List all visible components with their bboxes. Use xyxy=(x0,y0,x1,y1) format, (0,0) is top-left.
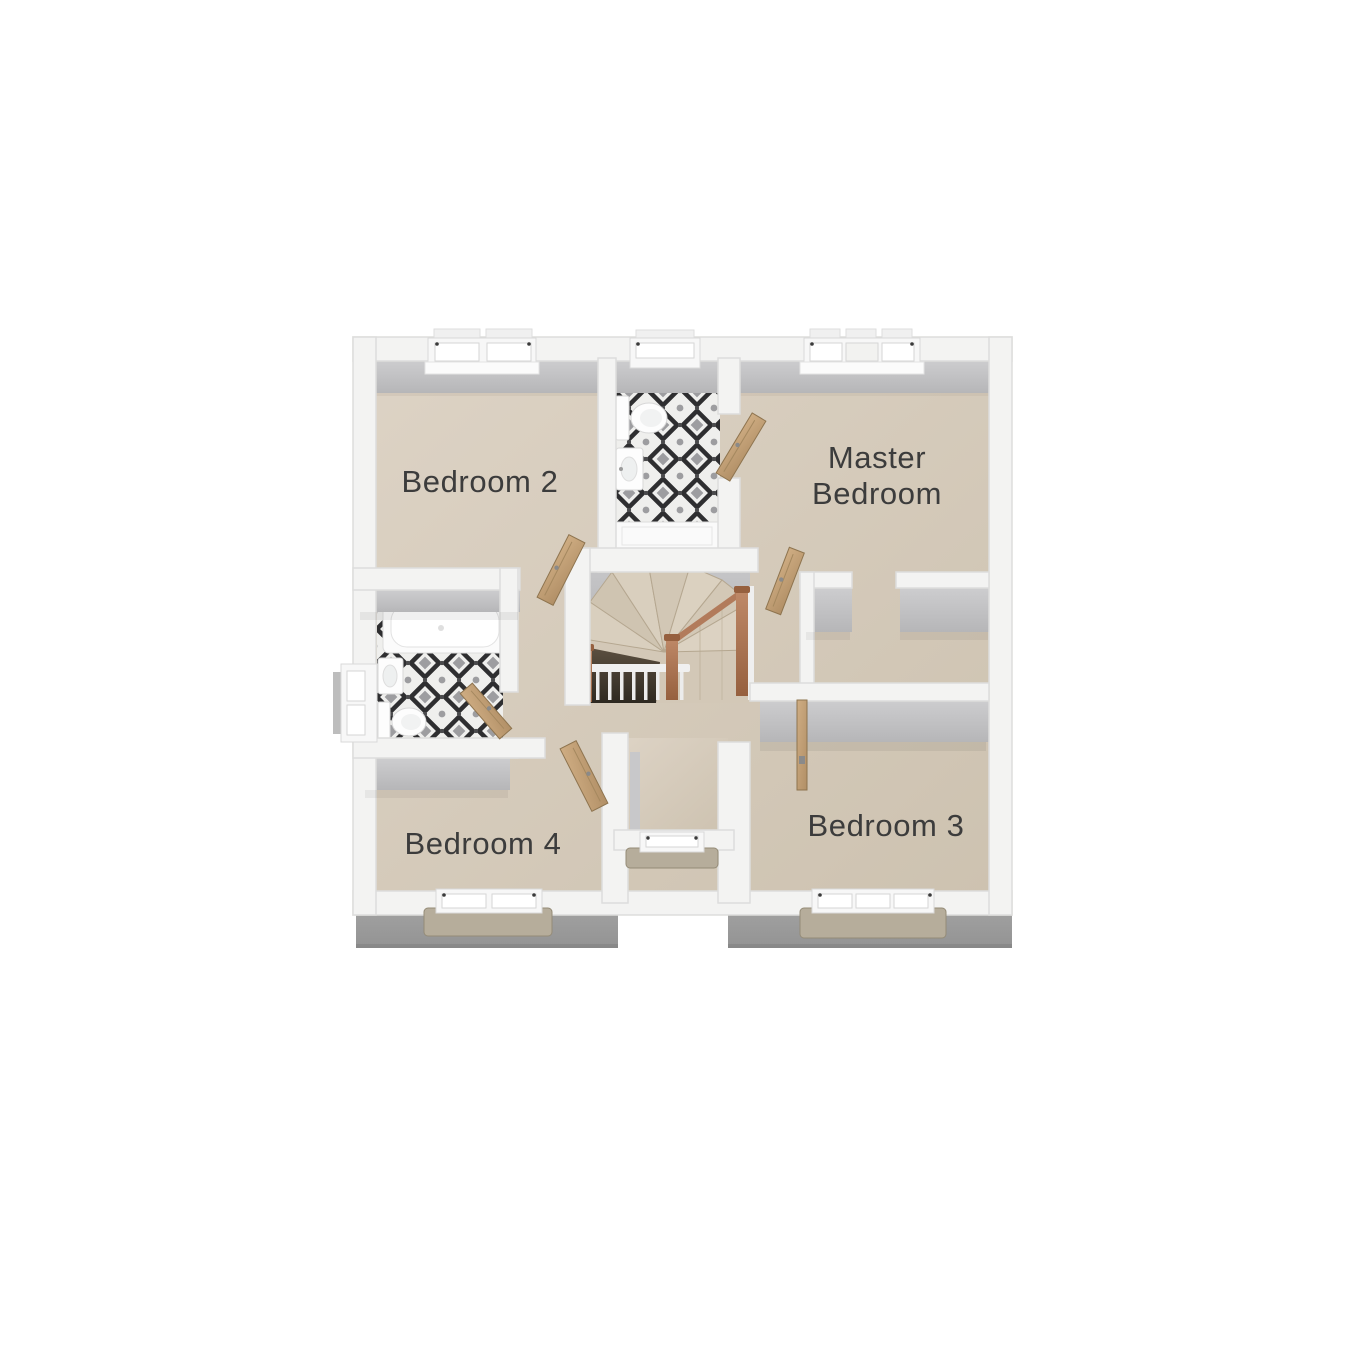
wall-ensuite-right-lower xyxy=(718,478,740,552)
toilet-seat xyxy=(401,714,421,730)
spindle xyxy=(596,672,600,700)
bedroom2-window xyxy=(425,329,539,374)
window-pane xyxy=(856,894,890,908)
window-hinge-dot xyxy=(636,342,640,346)
wall-bay-right xyxy=(718,742,750,903)
window-ext-bump xyxy=(636,330,694,338)
bedroom2-label: Bedroom 2 xyxy=(401,464,558,499)
shadow xyxy=(365,790,508,798)
staircase xyxy=(578,550,754,703)
bathroom-window xyxy=(333,664,377,742)
newel-post xyxy=(666,636,678,700)
window-hinge-dot xyxy=(928,893,932,897)
window-pane xyxy=(810,343,842,361)
wall-bedroom2-south xyxy=(353,568,520,590)
window-ext-bump xyxy=(882,329,912,338)
window-pane xyxy=(487,343,531,361)
bedroom4-window xyxy=(424,889,552,936)
window-hinge-dot xyxy=(910,342,914,346)
newel-cap xyxy=(664,634,680,641)
wall-stairwell-top xyxy=(565,548,758,572)
window-sill xyxy=(800,362,924,374)
spindle xyxy=(620,672,624,700)
wall-bathroom-right-upper xyxy=(500,568,518,692)
master-bedroom-label: MasterBedroom xyxy=(812,440,942,511)
shower-tray xyxy=(616,522,718,550)
window-ext-bump xyxy=(810,329,840,338)
bathtub-drain xyxy=(438,625,444,631)
floor-plan-page: Bedroom 2 MasterBedroom Bedroom 3 Bedroo… xyxy=(0,0,1350,1350)
roof-right-edge xyxy=(728,944,1012,948)
floor-plan: Bedroom 2 MasterBedroom Bedroom 3 Bedroo… xyxy=(0,0,1350,1350)
window-hinge-dot xyxy=(818,893,822,897)
window-pane xyxy=(894,894,928,908)
shadow xyxy=(760,742,986,751)
basin-bowl xyxy=(621,457,637,481)
face-bay-left xyxy=(630,752,640,834)
face-bedroom3-north xyxy=(760,700,989,742)
roof-left-edge xyxy=(356,944,618,948)
wall-bay-left xyxy=(602,733,628,903)
window-pane xyxy=(646,836,698,847)
bedroom3-window xyxy=(800,889,946,938)
face-bedroom4-north xyxy=(365,758,510,790)
newel-cap xyxy=(734,586,750,593)
window-pane xyxy=(347,705,365,735)
window-ext-bump xyxy=(486,329,532,338)
wall-master-stub-b xyxy=(896,572,989,588)
spindle xyxy=(644,672,648,700)
window-hinge-dot xyxy=(527,342,531,346)
shadow xyxy=(360,612,518,620)
wall-bedroom3-north xyxy=(750,683,989,701)
window-pane xyxy=(492,894,536,908)
toilet-seat xyxy=(640,409,662,427)
shadow xyxy=(806,632,850,640)
window-pane xyxy=(882,343,914,361)
window-hinge-dot xyxy=(646,836,649,839)
spindle xyxy=(680,672,684,700)
window-hinge-dot xyxy=(532,893,536,897)
wall-ensuite-left xyxy=(598,358,616,572)
spindle xyxy=(608,672,612,700)
window-hinge-dot xyxy=(435,342,439,346)
master-window xyxy=(800,329,924,374)
newel-post xyxy=(736,588,748,696)
window-pane xyxy=(818,894,852,908)
window-pane xyxy=(347,671,365,701)
basin xyxy=(616,448,643,490)
basin-bowl xyxy=(383,665,397,687)
window-pane xyxy=(636,343,694,358)
face-bedroom2-south xyxy=(360,590,520,612)
wall-exterior-right xyxy=(989,337,1012,915)
window-pane xyxy=(435,343,479,361)
window-hinge-dot xyxy=(810,342,814,346)
bedroom4-label: Bedroom 4 xyxy=(404,826,561,861)
bathroom-basin xyxy=(378,658,403,694)
face-master-stub-b xyxy=(900,588,989,632)
ensuite-window xyxy=(630,330,700,368)
wall-ensuite-right-upper xyxy=(718,358,740,414)
window-ext-bump xyxy=(434,329,480,338)
window-sill xyxy=(425,362,539,374)
window-ext-bump xyxy=(846,329,876,338)
window-hinge-dot xyxy=(442,893,446,897)
wall-bathroom-south xyxy=(353,738,545,758)
wall-exterior-left xyxy=(353,337,376,915)
wall-master-stub-a-leg xyxy=(800,572,814,690)
spindle xyxy=(632,672,636,700)
landing-bay-window xyxy=(626,832,718,868)
window-pane xyxy=(846,343,878,361)
bedroom3-label: Bedroom 3 xyxy=(807,808,964,843)
shadow xyxy=(900,632,988,640)
spindle xyxy=(656,672,660,700)
window-hinge-dot xyxy=(694,836,697,839)
basin-tap xyxy=(619,467,623,471)
toilet-cistern xyxy=(616,396,629,440)
toilet-cistern xyxy=(378,702,390,742)
bedroom3-door xyxy=(797,700,807,790)
window-pane xyxy=(442,894,486,908)
